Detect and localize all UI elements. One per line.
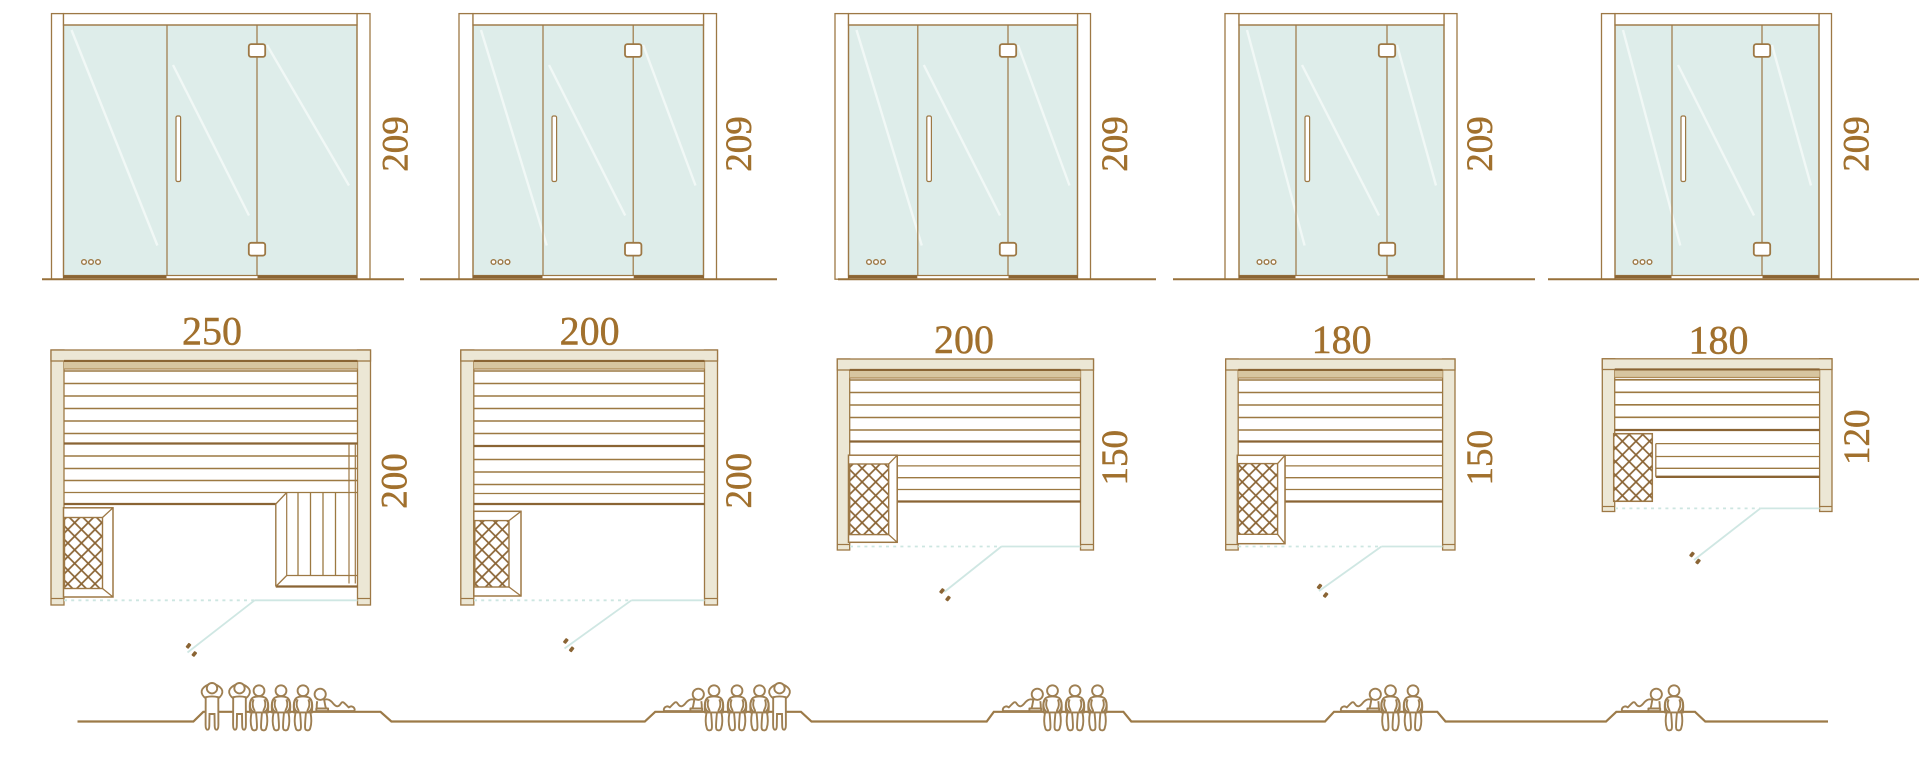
svg-text:150: 150 <box>1460 430 1501 486</box>
svg-text:209: 209 <box>376 116 417 172</box>
svg-text:209: 209 <box>1095 116 1136 172</box>
svg-text:120: 120 <box>1837 409 1878 465</box>
svg-text:180: 180 <box>1689 317 1749 362</box>
svg-text:150: 150 <box>1095 430 1136 486</box>
svg-text:200: 200 <box>934 317 994 362</box>
svg-text:180: 180 <box>1312 317 1372 362</box>
svg-text:200: 200 <box>719 453 760 509</box>
svg-text:209: 209 <box>1837 116 1878 172</box>
svg-text:250: 250 <box>182 309 242 354</box>
svg-text:200: 200 <box>375 453 416 509</box>
svg-text:200: 200 <box>560 308 620 353</box>
svg-text:209: 209 <box>1460 116 1501 172</box>
svg-text:209: 209 <box>719 116 760 172</box>
